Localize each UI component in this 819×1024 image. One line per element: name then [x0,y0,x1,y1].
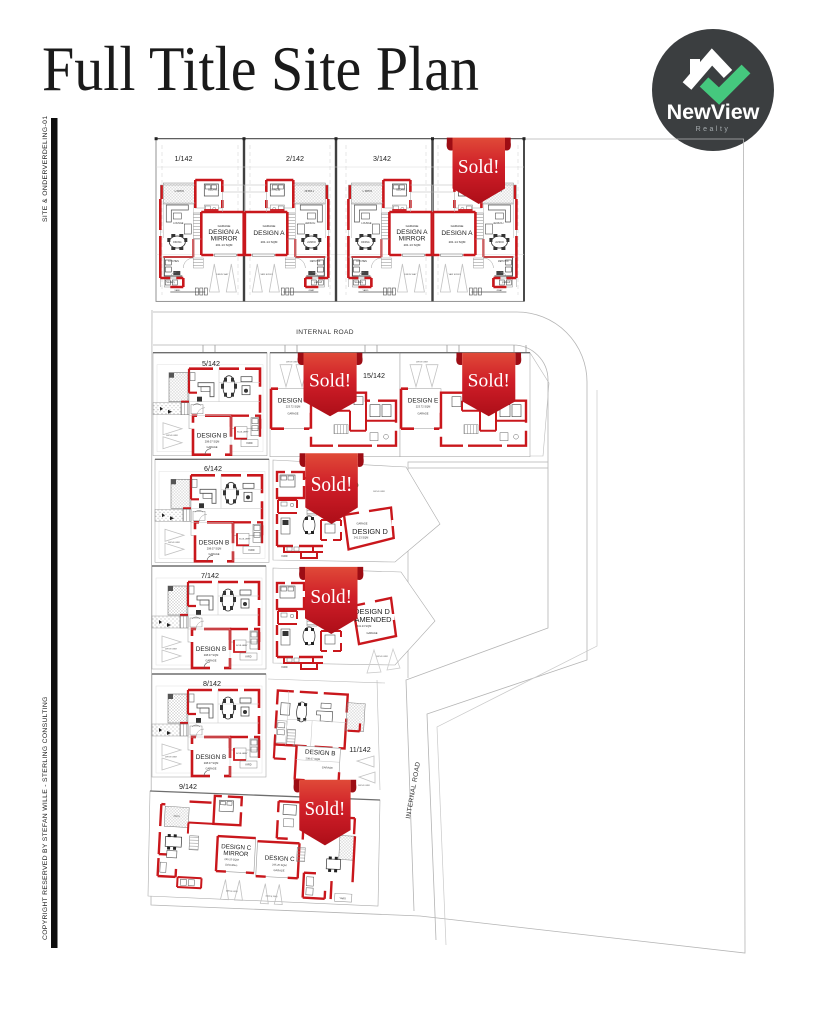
svg-text:GARAGE: GARAGE [406,224,419,228]
svg-text:INTERNAL ROAD: INTERNAL ROAD [296,329,354,336]
svg-text:DESIGN D: DESIGN D [352,527,388,536]
svg-text:Full Title Site Plan: Full Title Site Plan [42,33,479,104]
svg-text:3/142: 3/142 [373,154,391,163]
svg-text:DESIGN A: DESIGN A [441,230,473,237]
svg-text:COPYRIGHT RESERVED BY STEFAN W: COPYRIGHT RESERVED BY STEFAN WILLE - STE… [42,696,49,940]
svg-text:201.14 SQM: 201.14 SQM [449,240,466,244]
svg-text:GARAGE: GARAGE [366,631,377,635]
svg-text:8/142: 8/142 [203,679,221,688]
svg-text:9/142: 9/142 [179,782,197,791]
svg-text:223.72 SQM: 223.72 SQM [286,405,301,409]
svg-text:245.20 SQM: 245.20 SQM [224,857,239,862]
svg-text:Schoolbus: Schoolbus [225,863,238,868]
svg-text:GARAGE: GARAGE [218,224,231,228]
svg-text:GARAGE: GARAGE [287,412,298,416]
svg-text:11/142: 11/142 [349,745,370,754]
svg-text:245.20 SQM: 245.20 SQM [272,862,287,867]
svg-text:MIRROR: MIRROR [399,236,426,243]
svg-text:MIRROR: MIRROR [223,850,249,858]
svg-text:YARD: YARD [339,897,346,900]
svg-text:SITE & ONDERVERDELING-01: SITE & ONDERVERDELING-01 [42,115,49,222]
svg-text:7/142: 7/142 [201,571,219,580]
svg-text:15/142: 15/142 [363,371,385,380]
svg-text:GARAGE: GARAGE [356,522,367,526]
svg-text:GARAGE: GARAGE [451,224,464,228]
svg-text:MIRROR: MIRROR [211,236,238,243]
svg-text:GARAGE: GARAGE [417,412,428,416]
svg-text:2/142: 2/142 [286,154,304,163]
svg-text:DRIVE WAY: DRIVE WAY [373,490,386,493]
svg-text:DRIVE WAY: DRIVE WAY [358,784,371,787]
svg-text:201.13 SQM: 201.13 SQM [404,243,421,247]
svg-text:DRIVE WAY: DRIVE WAY [376,655,389,658]
svg-text:DESIGN E: DESIGN E [408,398,439,405]
svg-text:201.13 SQM: 201.13 SQM [216,243,233,247]
svg-text:GARAGE: GARAGE [263,224,276,228]
svg-text:241.23 SQM: 241.23 SQM [354,536,369,540]
svg-text:DRIVE WAY: DRIVE WAY [286,361,299,364]
svg-text:GARAGE: GARAGE [322,765,334,770]
svg-text:PATIO: PATIO [174,815,181,818]
svg-text:5/142: 5/142 [202,359,220,368]
svg-text:1/142: 1/142 [175,154,193,163]
svg-text:NewView: NewView [667,100,760,124]
svg-text:AMENDED: AMENDED [355,615,392,624]
svg-text:223.72 SQM: 223.72 SQM [416,405,431,409]
svg-text:6/142: 6/142 [204,464,222,473]
svg-text:Realty: Realty [696,126,731,133]
svg-text:DRIVE WAY: DRIVE WAY [416,361,429,364]
svg-text:DESIGN A: DESIGN A [253,230,285,237]
svg-text:241.23 SQM: 241.23 SQM [357,624,372,628]
svg-text:GARAGE: GARAGE [273,868,285,873]
svg-text:201.14 SQM: 201.14 SQM [261,240,278,244]
